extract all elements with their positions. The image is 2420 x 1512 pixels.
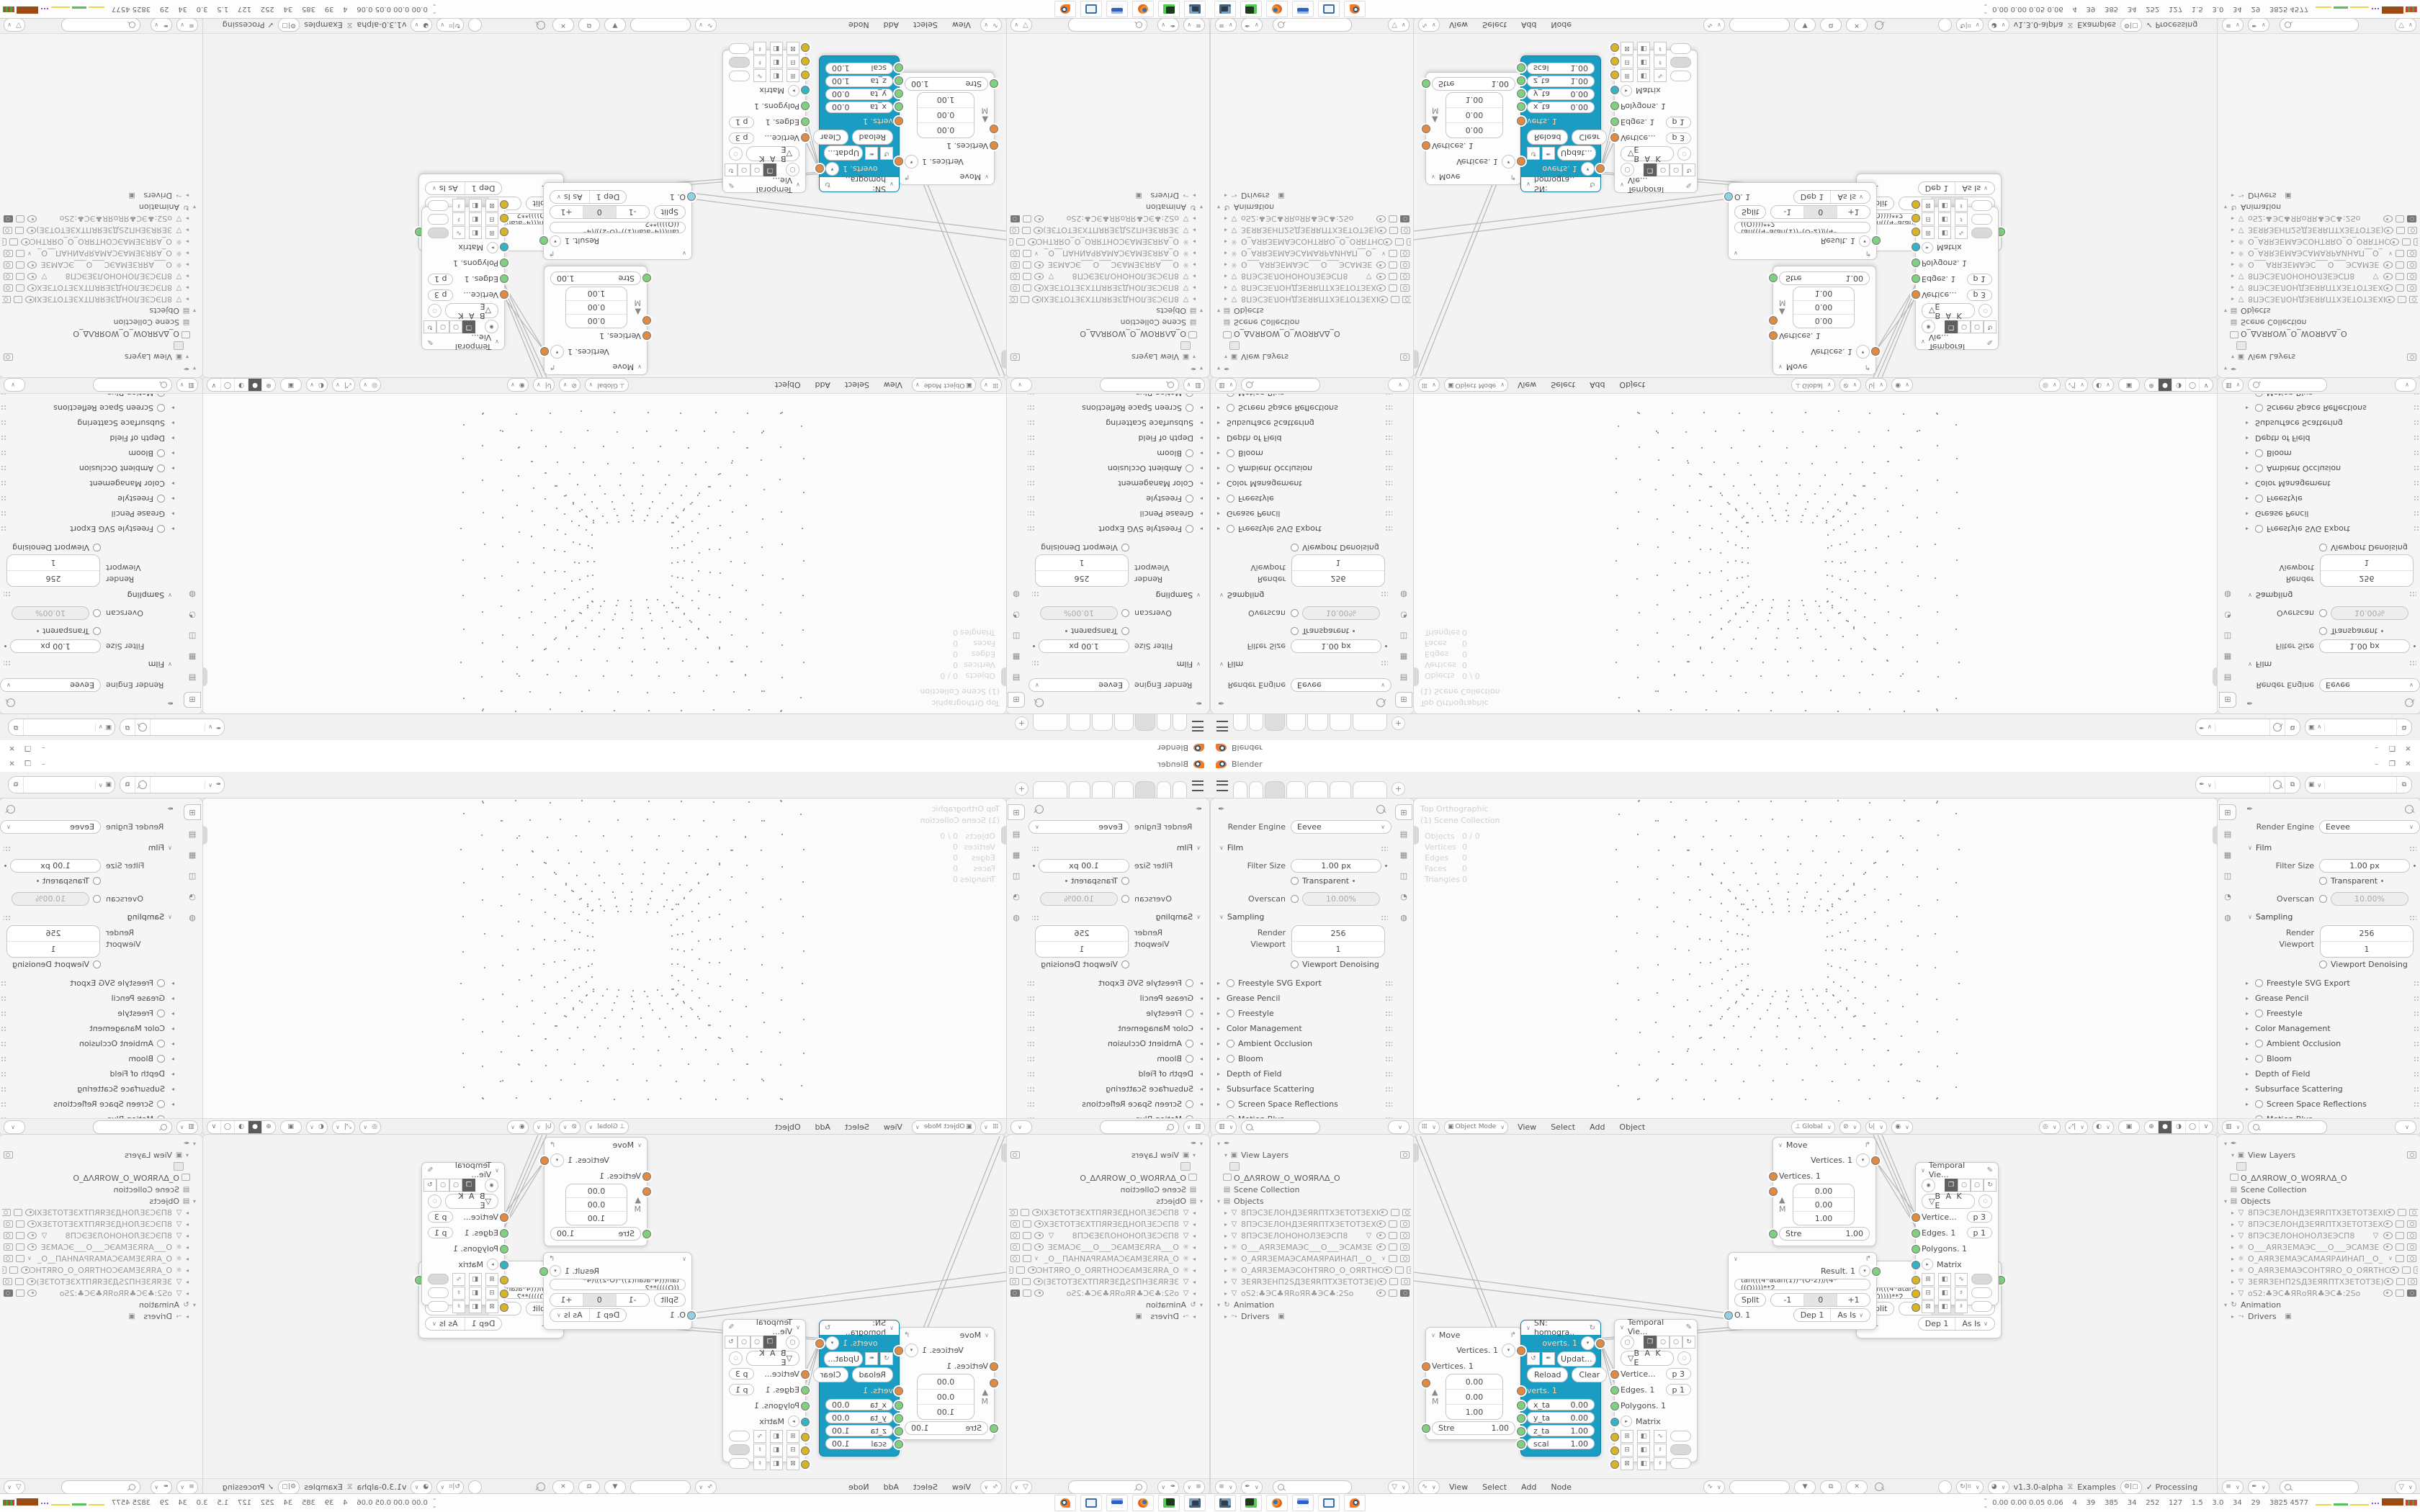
panel-freestyle-svg-export[interactable]: ▸Freestyle SVG Export — [1211, 978, 1392, 988]
sampling-viewport-field[interactable]: 1 — [1292, 941, 1384, 957]
camera-toggle-icon[interactable] — [2407, 1151, 2416, 1158]
minimize-button[interactable]: – — [39, 760, 48, 768]
filter-id-button[interactable]: ✒∨ — [1157, 1480, 1179, 1494]
camera-toggle-icon[interactable] — [1010, 1220, 1020, 1228]
taskbar-imageviewer-app-icon[interactable] — [1318, 1, 1340, 17]
copy-icon[interactable]: ⧉ — [1820, 1480, 1842, 1494]
overlays-button[interactable]: ◐∨ — [2092, 379, 2114, 392]
sampling-panel-header[interactable]: ∨Sampling — [1216, 590, 1264, 600]
mode-select[interactable]: As Is∨ — [550, 1309, 590, 1321]
pin-icon[interactable] — [2269, 777, 2285, 793]
scene-name-field[interactable] — [2215, 719, 2269, 735]
sampling-render-field[interactable]: 256 — [7, 571, 99, 586]
display-a-icon[interactable]: ○ — [1958, 1179, 1971, 1192]
subprogram-button[interactable]: ↻|⌗∨ — [436, 19, 464, 32]
view-layers-label[interactable]: View Layers — [1241, 1151, 1289, 1160]
search-input[interactable] — [1068, 1480, 1147, 1494]
tree-name-field[interactable] — [1729, 19, 1790, 32]
object-name[interactable]: О_АЯRЗЕМАЭСОНТЯRО_О_ОЯRТНС — [30, 238, 172, 247]
y-field[interactable]: 0.00 — [1793, 301, 1854, 315]
eye-icon[interactable] — [1376, 1232, 1386, 1239]
panel-ambient-occlusion[interactable]: ▸Ambient Occlusion — [0, 1039, 181, 1048]
object-name[interactable]: ЗЕЯRЗЕНП2SДЗЕЯRПТХЗЕТОТЗЕ) — [2248, 1277, 2384, 1287]
param-field[interactable]: z_ta1.00 — [1527, 1425, 1595, 1436]
attr-field[interactable] — [1670, 1458, 1691, 1469]
camera-toggle-icon[interactable] — [2408, 1278, 2417, 1285]
transparent-checkbox[interactable] — [1291, 877, 1299, 885]
attr-field[interactable] — [729, 1431, 750, 1441]
dropdown-button[interactable]: ▾ — [1502, 156, 1515, 169]
zero-field[interactable]: 0 — [1803, 1294, 1837, 1306]
eye-icon[interactable] — [2383, 274, 2393, 281]
camera-toggle-icon[interactable] — [1400, 1255, 1410, 1262]
strength-field[interactable]: Stre1.00 — [905, 78, 988, 91]
taskbar-floppy-app-icon[interactable] — [1292, 1495, 1314, 1511]
attr-field[interactable] — [428, 1301, 449, 1312]
object-name[interactable]: О_АЯRЗЕМАЭСОНТЯRО_О_ОЯRТНС — [2248, 1266, 2390, 1275]
sampling-panel-header[interactable]: ∨Sampling — [2245, 912, 2293, 922]
panel-screen-space-reflections[interactable]: ▸Screen Space Reflections — [2239, 1099, 2420, 1109]
screen-toggle-icon[interactable] — [16, 215, 24, 222]
sampling-render-field[interactable]: 256 — [1292, 926, 1384, 941]
viewport-denoising-checkbox[interactable] — [2319, 544, 2327, 552]
screen-toggle-icon[interactable] — [2396, 261, 2404, 269]
screen-toggle-icon[interactable] — [1395, 1266, 1404, 1274]
shield-icon[interactable]: ▼ — [1794, 1480, 1816, 1494]
object-name[interactable]: 8ПЭСЗЕЛОНОНОЛЗЕЭСП8 — [66, 272, 172, 282]
filter-size-field[interactable]: 1.00 px — [1291, 859, 1381, 873]
viewlayer-badge-icon[interactable] — [1180, 341, 1191, 350]
screen-toggle-icon[interactable] — [1389, 1278, 1398, 1285]
mode-select[interactable]: ▣ Object Mode∨ — [1444, 379, 1508, 392]
orientation-select[interactable]: ⊥ Global∨ — [1791, 1120, 1834, 1134]
overscan-checkbox[interactable] — [93, 609, 101, 617]
strength-field[interactable]: Stre1.00 — [905, 1421, 988, 1435]
display-b-icon[interactable]: ○ — [436, 320, 449, 333]
pin-icon[interactable] — [6, 805, 15, 814]
y-field[interactable]: 0.00 — [918, 1389, 974, 1404]
eye-icon[interactable] — [1376, 215, 1386, 222]
sampling-render-field[interactable]: 256 — [1036, 571, 1128, 586]
panel-bloom[interactable]: ▸Bloom — [1028, 449, 1209, 458]
menu-add[interactable]: Add — [879, 21, 904, 30]
screen-toggle-icon[interactable] — [1389, 1232, 1397, 1239]
camera-toggle-icon[interactable] — [4, 274, 13, 281]
object-name[interactable]: оS2:♣ЭС♣ЯRоЯR♣ЭС♣:2Sо — [60, 215, 172, 224]
eye-icon[interactable] — [27, 1220, 37, 1228]
gizmo-toggle[interactable]: ⊘∨ — [1839, 1120, 1861, 1134]
animation-label[interactable]: Animation — [1234, 203, 1274, 212]
screen-toggle-icon[interactable] — [2396, 250, 2404, 257]
panel-depth-of-field[interactable]: ▸Depth of Field — [1211, 1069, 1392, 1079]
eye-icon[interactable] — [1034, 1243, 1044, 1251]
render-engine-select[interactable]: Eevee∨ — [1291, 820, 1391, 834]
dep-field[interactable]: Dep 1 — [1794, 192, 1831, 204]
strength-field[interactable]: Stre1.00 — [1432, 78, 1515, 91]
plus-button[interactable]: +1 — [1837, 1294, 1870, 1306]
shading-wireframe-icon[interactable]: ⊕ — [2145, 1121, 2158, 1133]
temporal-viewer-node[interactable]: ∨Temporal Vie...✎ ◉❒○○↻ ▽ B A K E◌ Verti… — [1915, 207, 1999, 350]
copy-icon[interactable]: ⧉ — [120, 777, 135, 793]
copy-icon[interactable]: ⧉ — [2285, 719, 2300, 735]
workspace-tab[interactable] — [1353, 781, 1387, 798]
screen-toggle-icon[interactable] — [9, 238, 18, 246]
shield-icon[interactable]: ▼ — [604, 19, 626, 32]
scene-collection-label[interactable]: Scene Collection — [1234, 1185, 1299, 1194]
panel-freestyle-svg-export[interactable]: ▸Freestyle SVG Export — [2239, 524, 2420, 534]
panel-depth-of-field[interactable]: ▸Depth of Field — [0, 1069, 181, 1079]
restore-button[interactable]: ❐ — [2388, 744, 2397, 752]
object-name[interactable]: оS2:♣ЭС♣ЯRоЯR♣ЭС♣:2Sо — [60, 1289, 172, 1298]
param-field[interactable]: y_ta0.00 — [1527, 89, 1595, 100]
eye-icon[interactable] — [27, 227, 36, 234]
copy-icon[interactable]: ⧉ — [9, 777, 24, 793]
menu-add[interactable]: Add — [810, 1122, 835, 1132]
bake-button[interactable]: ▽ B A K E — [1621, 147, 1674, 162]
pin-icon[interactable] — [6, 699, 15, 708]
camera-toggle-icon[interactable] — [1010, 284, 1020, 292]
menu-object[interactable]: Object — [770, 381, 806, 390]
xray-toggle[interactable]: ⤢|∨ — [2065, 1120, 2088, 1134]
sampling-render-field[interactable]: 256 — [2321, 926, 2413, 941]
editor-type-button[interactable]: 𝍖∨ — [980, 1120, 1002, 1134]
animation-label[interactable]: Animation — [2241, 203, 2281, 212]
menu-add[interactable]: Add — [879, 1482, 904, 1492]
dropdown-button[interactable]: ▾ — [550, 1153, 564, 1167]
display-solid-icon[interactable]: ❒ — [1644, 1336, 1657, 1349]
reload-button[interactable]: Reload — [1527, 130, 1568, 145]
screen-toggle-icon[interactable] — [1021, 296, 1029, 303]
overlays-button[interactable]: ◐∨ — [306, 379, 328, 392]
display-a-icon[interactable]: ○ — [1657, 163, 1670, 176]
ink-tool-icon[interactable]: ✒ — [1542, 147, 1555, 160]
shading-mode-group[interactable]: ⊕ ● ◑ ◯ ∨ — [207, 379, 276, 392]
animation-label[interactable]: Animation — [2241, 1300, 2281, 1310]
sampling-render-field[interactable]: 256 — [1292, 571, 1384, 586]
screen-toggle-icon[interactable] — [14, 296, 22, 303]
properties-tab-scene-icon[interactable]: ◔ — [1008, 608, 1024, 623]
viewlayer-name-field[interactable] — [2325, 777, 2396, 793]
scene-collection-label[interactable]: Scene Collection — [2241, 1185, 2306, 1194]
workspace-tab[interactable] — [1233, 714, 1247, 731]
eye-icon[interactable] — [1034, 227, 1043, 234]
properties-tab-world-icon[interactable]: ◍ — [2220, 910, 2236, 924]
show-gizmo-button[interactable]: ▣ — [280, 379, 302, 392]
shading-material-icon[interactable]: ◑ — [2172, 379, 2185, 392]
object-name[interactable]: ЗЕЯRЗЕНП2SДЗЕЯRПТХЗЕТОТЗЕ) — [2248, 226, 2384, 235]
sampling-panel-header[interactable]: ∨Sampling — [1156, 590, 1204, 600]
bake-button[interactable]: ▽ B A K E — [1922, 1194, 1975, 1209]
x-field[interactable]: 0.00 — [918, 1374, 974, 1389]
object-name[interactable]: 8ПЭСЗЕЛОНДЗЕЯRПТХЗЕТОТЗЕХI — [1241, 295, 1379, 305]
proportional-edit-button[interactable]: ◉∨ — [507, 1120, 529, 1134]
panel-freestyle-svg-export[interactable]: ▸Freestyle SVG Export — [2239, 978, 2420, 988]
vertices-count[interactable]: p 3 — [729, 1368, 754, 1380]
properties-tab-output-icon[interactable]: ▦ — [184, 847, 200, 862]
sampling-panel-header[interactable]: ∨Sampling — [1216, 912, 1264, 922]
sampling-values[interactable]: 256 1 — [1035, 925, 1129, 958]
screen-toggle-icon[interactable] — [1016, 1266, 1025, 1274]
eye-icon[interactable] — [1379, 296, 1388, 303]
eye-icon[interactable] — [1376, 274, 1386, 281]
options-button[interactable]: ∨ — [4, 379, 25, 392]
pin-icon[interactable] — [1875, 1482, 1883, 1491]
node-window-toggle[interactable]: ⚙|▢ — [2120, 1480, 2142, 1494]
mode-select[interactable]: As Is∨ — [1955, 1318, 1994, 1330]
display-b-icon[interactable]: ○ — [1971, 1179, 1984, 1192]
eye-icon[interactable] — [2385, 1209, 2395, 1216]
bake-button[interactable]: ▽ B A K E — [1922, 304, 1975, 319]
display-mode-button[interactable]: ≡∨ — [1215, 1480, 1237, 1494]
dropdown-button[interactable]: ▾ — [1856, 1153, 1870, 1167]
camera-toggle-icon[interactable] — [4, 1232, 13, 1239]
properties-tab-tool-icon[interactable]: ⊞ — [1008, 804, 1025, 820]
film-panel-header[interactable]: ∨Film — [1216, 843, 1243, 852]
camera-toggle-icon[interactable] — [1400, 1232, 1410, 1239]
object-name[interactable]: ЗЕЯRЗЕНП2SДЗЕЯRПТХЗЕТОТЗЕ) — [1043, 1277, 1179, 1287]
orientation-select[interactable]: ⊥ Global∨ — [585, 379, 628, 392]
x-field[interactable]: 0.00 — [1793, 1184, 1854, 1197]
menu-hamburger-icon[interactable] — [1216, 780, 1228, 791]
object-name[interactable]: О_АЯRЗЕМАЭСОНТЯRО_О_ОЯRТНС — [30, 1266, 172, 1275]
panel-color-management[interactable]: ▸Color Management — [2239, 1024, 2420, 1033]
minus-button[interactable]: -1 — [617, 1294, 649, 1306]
editor-type-button[interactable]: ▥∨ — [176, 379, 198, 392]
panel-freestyle-svg-export[interactable]: ▸Freestyle SVG Export — [1028, 524, 1209, 534]
shield-icon[interactable]: ▼ — [604, 1480, 626, 1494]
sampling-values[interactable]: 256 1 — [1291, 554, 1385, 587]
screen-toggle-icon[interactable] — [1022, 227, 1031, 234]
properties-tab-tool-icon[interactable]: ⊞ — [2219, 804, 2236, 820]
filter-size-field[interactable]: 1.00 px — [2319, 639, 2410, 653]
pivot-button[interactable]: ◎∨ — [2039, 379, 2061, 392]
object-name[interactable]: 8ПЭСЗЕЛОНДЗЕЯRПТХЗЕТОТЗЕХI — [1041, 295, 1179, 305]
dep-field[interactable]: Dep 1 — [590, 192, 627, 204]
camera-toggle-icon[interactable] — [2409, 1209, 2418, 1216]
shading-rendered-icon[interactable]: ◯ — [221, 1121, 235, 1133]
eye-icon[interactable] — [27, 284, 37, 292]
viewport-denoising-checkbox[interactable] — [1121, 544, 1129, 552]
editor-type-button[interactable]: ▥∨ — [1215, 1120, 1237, 1134]
panel-depth-of-field[interactable]: ▸Depth of Field — [2239, 1069, 2420, 1079]
eye-icon[interactable] — [1376, 1220, 1386, 1228]
view-toggle-button[interactable]: ◉ — [485, 320, 498, 334]
panel-subsurface-scattering[interactable]: ▸Subsurface Scattering — [1211, 1084, 1392, 1094]
overscan-checkbox[interactable] — [1291, 609, 1299, 617]
shading-options-icon[interactable]: ∨ — [2199, 379, 2213, 392]
pin-icon[interactable] — [1875, 21, 1883, 30]
display-mode-button[interactable]: ≡∨ — [176, 19, 198, 32]
panel-subsurface-scattering[interactable]: ▸Subsurface Scattering — [2239, 1084, 2420, 1094]
editor-type-button[interactable]: ∿∨ — [980, 19, 1002, 32]
menu-node[interactable]: Node — [843, 21, 874, 30]
object-name[interactable]: О_АЯRЗЕМАЭСАМАЯРАИНАП__О_ — [1044, 1254, 1179, 1264]
panel-color-management[interactable]: ▸Color Management — [1028, 479, 1209, 488]
display-solid-icon[interactable]: ❒ — [462, 1179, 475, 1192]
script-node[interactable]: ∨SN: homogra..↻ overts. 1▾ ↺✒Updat... Re… — [1520, 1320, 1601, 1457]
screen-toggle-icon[interactable] — [16, 250, 24, 257]
eye-icon[interactable] — [1379, 1209, 1388, 1216]
camera-toggle-icon[interactable] — [1407, 1266, 1411, 1274]
menu-hamburger-icon[interactable] — [1192, 721, 1204, 732]
camera-toggle-icon[interactable] — [1400, 1290, 1410, 1297]
panel-ambient-occlusion[interactable]: ▸Ambient Occlusion — [1028, 1039, 1209, 1048]
pin-icon[interactable] — [537, 21, 545, 30]
panel-freestyle[interactable]: ▸Freestyle — [1211, 494, 1392, 503]
view-layers-label[interactable]: View Layers — [2248, 1151, 2295, 1160]
split-button[interactable]: Split — [654, 1293, 686, 1307]
taskbar-firefox-app-icon[interactable] — [1132, 1, 1154, 17]
workspace-tab[interactable] — [1157, 781, 1171, 798]
eye-icon[interactable] — [1034, 1290, 1044, 1297]
sampling-render-field[interactable]: 256 — [1036, 926, 1128, 941]
move-node[interactable]: ∨Move↱ Vertices. 1▾ Vertices. 1 ▲M 0.00 … — [898, 1327, 995, 1440]
eye-icon[interactable] — [1376, 1243, 1386, 1251]
properties-tab-scene-icon[interactable]: ◔ — [2220, 608, 2236, 623]
minimize-button[interactable]: – — [2372, 744, 2381, 752]
workspace-tab[interactable] — [1157, 714, 1171, 731]
eye-icon[interactable] — [1032, 1209, 1041, 1216]
panel-grease-pencil[interactable]: ▸Grease Pencil — [1028, 509, 1209, 518]
viewlayer-name-field[interactable] — [24, 777, 95, 793]
render-engine-select[interactable]: Eevee∨ — [0, 820, 101, 834]
copy-icon[interactable]: ⧉ — [9, 719, 24, 735]
camera-toggle-icon[interactable] — [1400, 354, 1410, 361]
screen-toggle-icon[interactable] — [2396, 1232, 2404, 1239]
animation-nodes-icon[interactable]: ✒ — [1188, 365, 1198, 373]
mode-select[interactable]: As Is∨ — [1955, 183, 1994, 195]
viewport-denoising-checkbox[interactable] — [2319, 960, 2327, 968]
eye-icon[interactable] — [2383, 215, 2393, 222]
dropdown-button[interactable]: ▾ — [905, 156, 918, 169]
screen-toggle-icon[interactable] — [2396, 284, 2404, 292]
screen-toggle-icon[interactable] — [1023, 1220, 1031, 1228]
script-icon[interactable]: ↺ — [1527, 147, 1540, 160]
attr-field[interactable] — [1670, 71, 1691, 81]
loop-icon[interactable]: ◌ — [729, 148, 743, 161]
eye-icon[interactable] — [27, 261, 37, 269]
overscan-checkbox[interactable] — [93, 895, 101, 903]
attr-field[interactable] — [1670, 57, 1691, 68]
param-field[interactable]: scal1.00 — [825, 1438, 893, 1449]
object-name[interactable]: оS2:♣ЭС♣ЯRоЯR♣ЭС♣:2Sо — [2248, 1289, 2360, 1298]
menu-view[interactable]: View — [1512, 1122, 1541, 1132]
z-field[interactable]: 1.00 — [1446, 1404, 1502, 1419]
loop-icon[interactable]: ◌ — [1978, 1194, 1992, 1208]
screen-toggle-icon[interactable] — [16, 1220, 24, 1228]
workspace-tab[interactable] — [1307, 781, 1328, 798]
z-field[interactable]: 1.00 — [918, 93, 974, 108]
panel-grease-pencil[interactable]: ▸Grease Pencil — [0, 509, 181, 518]
filter-size-field[interactable]: 1.00 px — [1039, 639, 1129, 653]
menu-object[interactable]: Object — [770, 1122, 806, 1132]
panel-grease-pencil[interactable]: ▸Grease Pencil — [0, 994, 181, 1003]
close-icon[interactable]: ✕ — [1846, 1480, 1868, 1494]
transparent-checkbox[interactable] — [93, 877, 101, 885]
screen-toggle-icon[interactable] — [1389, 284, 1397, 292]
object-name[interactable]: оS2:♣ЭС♣ЯRоЯR♣ЭС♣:2Sо — [1241, 215, 1353, 224]
animation-nodes-icon[interactable]: ✒ — [1222, 365, 1232, 373]
editor-type-button[interactable]: 𝍖∨ — [1418, 379, 1440, 392]
mode-select[interactable]: As Is∨ — [1830, 1309, 1870, 1321]
subprogram-button[interactable]: ↻|⌗∨ — [1956, 19, 1984, 32]
menu-view[interactable]: View — [879, 381, 907, 390]
eye-icon[interactable] — [2385, 296, 2395, 303]
loop-icon[interactable]: ◌ — [1677, 148, 1691, 161]
filter-button[interactable]: ▽∨ — [4, 19, 25, 32]
camera-toggle-icon[interactable] — [4, 284, 13, 292]
camera-toggle-icon[interactable] — [2407, 1232, 2416, 1239]
screen-toggle-icon[interactable] — [1023, 1290, 1031, 1297]
animation-nodes-icon[interactable]: ✒ — [2229, 1140, 2238, 1148]
camera-toggle-icon[interactable] — [1400, 1243, 1410, 1251]
display-loop-icon[interactable]: ↻ — [1682, 1336, 1695, 1349]
taskbar-imageviewer-app-icon[interactable] — [1080, 1, 1102, 17]
panel-subsurface-scattering[interactable]: ▸Subsurface Scattering — [0, 418, 181, 428]
object-name[interactable]: О_АЯRЗЕМАЭСОНТЯRО_О_ОЯRТНС — [1241, 238, 1383, 247]
screen-toggle-icon[interactable] — [2402, 238, 2411, 246]
workspace-tab[interactable] — [1233, 781, 1247, 798]
film-panel-header[interactable]: ∨Film — [1177, 843, 1204, 852]
camera-toggle-icon[interactable] — [1010, 354, 1020, 361]
loop-icon[interactable]: ◌ — [428, 305, 442, 318]
eye-icon[interactable] — [2383, 1232, 2393, 1239]
object-name[interactable]: 8ПЭСЗЕЛОНДЗЕЯRПТХЗЕТОТЗЕХ — [37, 1220, 172, 1229]
scene-name-field[interactable] — [151, 719, 205, 735]
scene-collection-label[interactable]: Scene Collection — [1121, 318, 1186, 328]
panel-grease-pencil[interactable]: ▸Grease Pencil — [1211, 994, 1392, 1003]
properties-tab-viewlayer-icon[interactable]: ◫ — [1008, 868, 1024, 883]
menu-hamburger-icon[interactable] — [1216, 721, 1228, 732]
expression-node[interactable]: ∨↱ Result. 1▾ tan(((4*atan(1))*(O-2))/(4… — [1728, 1252, 1877, 1330]
screen-toggle-icon[interactable] — [1023, 261, 1031, 269]
properties-tab-world-icon[interactable]: ◍ — [1396, 910, 1412, 924]
panel-screen-space-reflections[interactable]: ▸Screen Space Reflections — [2239, 403, 2420, 413]
temporal-viewer-node[interactable]: ∨Temporal Vie...✎ ◉❒○○↻ ▽ B A K E◌ Verti… — [421, 207, 505, 350]
view-toggle-button[interactable]: ◉ — [1922, 1179, 1935, 1192]
search-input[interactable] — [1273, 19, 1352, 32]
camera-toggle-icon[interactable] — [2, 296, 11, 303]
camera-toggle-icon[interactable] — [1010, 261, 1020, 269]
object-name[interactable]: О___АЯRЗЕМАЭС___О___ЭСАМЗЕ — [2248, 1243, 2379, 1252]
screen-toggle-icon[interactable] — [2396, 1220, 2404, 1228]
display-a-icon[interactable]: ○ — [449, 1179, 462, 1192]
pin-icon[interactable] — [1035, 805, 1044, 814]
dropdown-button[interactable]: ▾ — [1502, 1344, 1515, 1357]
mode-select[interactable]: As Is∨ — [426, 1318, 465, 1330]
eye-icon[interactable] — [1034, 284, 1044, 292]
workspace-tab[interactable] — [1069, 714, 1090, 731]
overlays-button[interactable]: ◐∨ — [306, 1120, 328, 1134]
tree-name-field[interactable] — [630, 19, 691, 32]
panel-ambient-occlusion[interactable]: ▸Ambient Occlusion — [1211, 1039, 1392, 1048]
eye-icon[interactable] — [1377, 1278, 1386, 1285]
minus-button[interactable]: -1 — [1771, 1294, 1803, 1306]
orientation-select[interactable]: ⊥ Global∨ — [1791, 379, 1834, 392]
tree-select[interactable]: ∿∨ — [695, 1480, 717, 1494]
render-engine-select[interactable]: Eevee∨ — [1028, 678, 1129, 692]
panel-freestyle[interactable]: ▸Freestyle — [0, 494, 181, 503]
node-editor[interactable]: ∨Move↱ Vertices. 1▾ Vertices. 1 ▲M 0.00 … — [202, 1134, 1007, 1495]
panel-ambient-occlusion[interactable]: ▸Ambient Occlusion — [1028, 464, 1209, 473]
drivers-label[interactable]: Drivers — [1241, 1312, 1270, 1321]
camera-toggle-icon[interactable] — [4, 1255, 13, 1262]
dropdown-button[interactable]: ▾ — [1859, 1265, 1870, 1277]
properties-tab-tool-icon[interactable]: ⊞ — [184, 804, 201, 820]
screen-toggle-icon[interactable] — [1023, 1243, 1031, 1251]
eye-icon[interactable] — [27, 1290, 37, 1297]
panel-bloom[interactable]: ▸Bloom — [1028, 1054, 1209, 1063]
